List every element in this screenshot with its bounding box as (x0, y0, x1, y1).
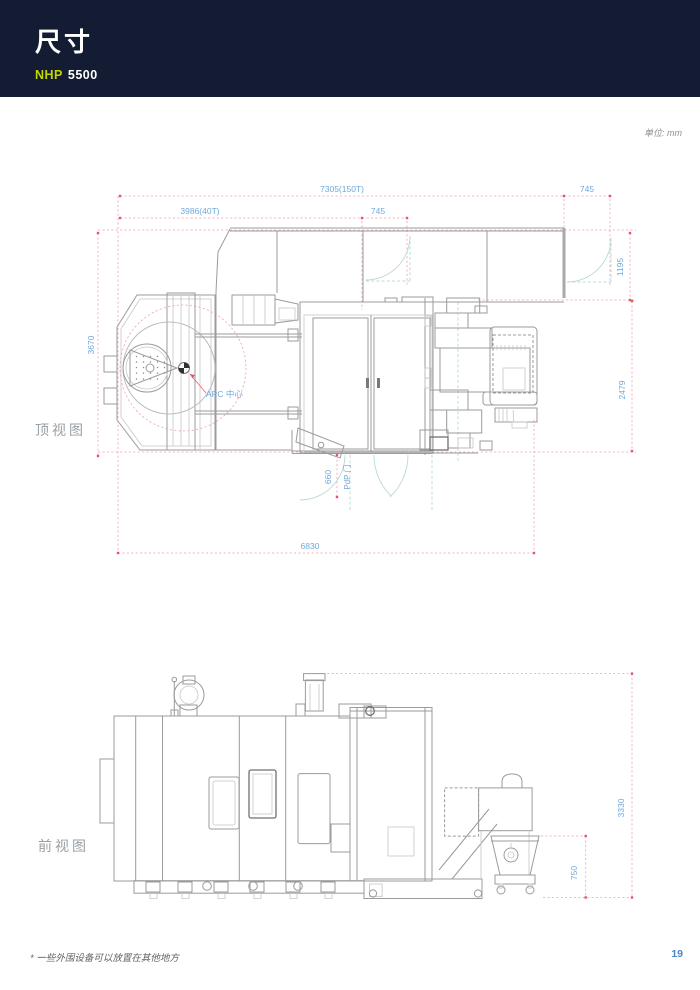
dim-pdp-offset: 660 (323, 470, 333, 484)
front-view-dimension-labels: 3330 750 (569, 798, 626, 880)
front-view-drawing: 3330 750 (85, 665, 665, 915)
dim-mid-door-width: 745 (371, 206, 385, 216)
dim-total-depth: 3670 (86, 335, 96, 354)
dim-floor-width: 6830 (301, 541, 320, 551)
b-axis-target (179, 363, 190, 374)
unit-note: 单位: mm (644, 126, 682, 139)
dim-right-door-width: 745 (580, 184, 594, 194)
dim-width-40t: 3986(40T) (180, 206, 219, 216)
apc-center-leader-arrow (190, 374, 206, 393)
page-number: 19 (671, 948, 683, 960)
dim-cart-height: 750 (569, 866, 579, 880)
top-view-drawing: 7305(150T) 745 3986(40T) 745 1195 2479 3… (85, 165, 665, 565)
top-view-label: 顶视图 (35, 420, 86, 440)
top-view-dimension-lines (98, 196, 636, 553)
page-header: 尺寸 NHP5500 (0, 0, 700, 97)
front-view-machine-outline (100, 674, 539, 899)
front-view-label: 前视图 (38, 836, 89, 856)
dim-overall-height: 3330 (616, 798, 626, 817)
catalog-page: 尺寸 NHP5500 单位: mm 顶视图 前视图 (0, 0, 700, 990)
model-brand: NHP (35, 68, 63, 82)
apc-center-label: APC 中心 (206, 389, 243, 399)
model-number: 5500 (68, 68, 98, 82)
pdp-door-label: PdP 门 (342, 464, 352, 489)
dim-fence-depth: 1195 (615, 258, 625, 277)
top-view-dimension-ticks (97, 195, 633, 554)
model-name: NHP5500 (35, 68, 700, 82)
footnote: * 一些外围设备可以放置在其他地方 (30, 950, 179, 964)
page-title: 尺寸 (35, 22, 700, 59)
top-view-machine-outline (104, 228, 564, 458)
dim-overall-width: 7305(150T) (320, 184, 364, 194)
front-view-dimension-ticks (585, 672, 634, 898)
dim-body-depth: 2479 (617, 380, 627, 399)
